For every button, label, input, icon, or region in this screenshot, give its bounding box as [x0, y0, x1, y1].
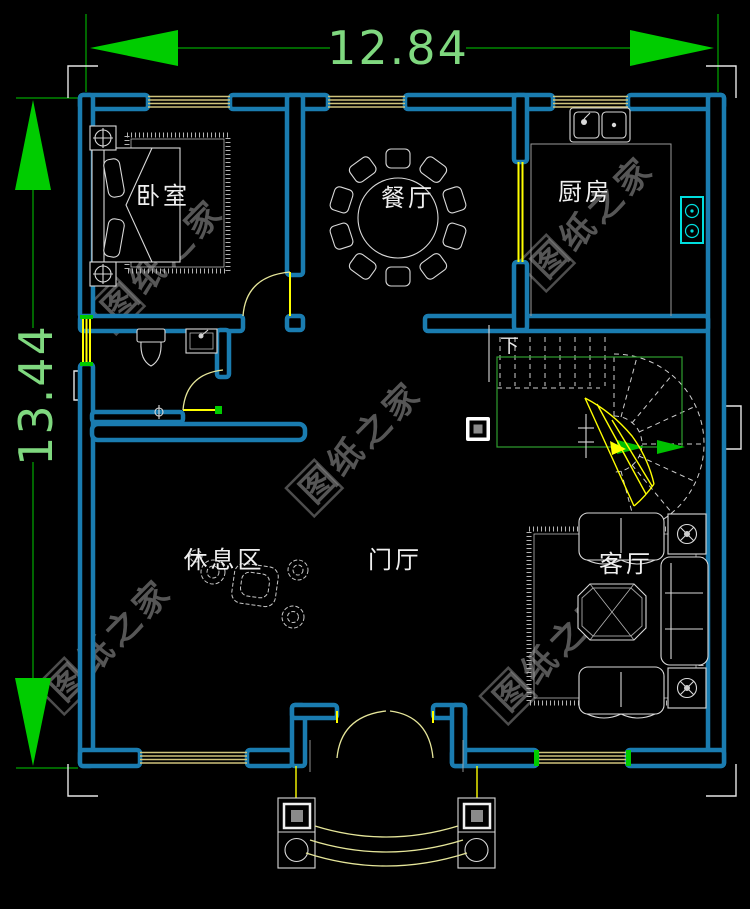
rest-area-window: [140, 753, 247, 764]
stair-direction-arrow: [657, 440, 685, 454]
end-table-lamp: [668, 668, 706, 708]
kitchen-window: [553, 97, 628, 108]
staircase: 下: [466, 325, 704, 534]
plant: [288, 560, 308, 580]
bracket-bottom-right: [706, 764, 736, 796]
down-arrow: [15, 678, 51, 766]
kitchen-west-wall: [514, 95, 527, 162]
watermark: 图纸之家: [518, 147, 663, 292]
entrance-hall-label: 门厅: [368, 546, 422, 574]
living-room-label: 客厅: [599, 550, 653, 578]
bedroom-window: [148, 97, 230, 108]
sofa-three-seat: [661, 557, 708, 665]
up-arrow: [15, 100, 51, 190]
column-symbol: [466, 417, 490, 441]
end-table-lamp: [668, 514, 706, 554]
dining-room: 餐厅: [329, 149, 467, 286]
toilet: [141, 342, 161, 366]
plant: [282, 606, 304, 628]
svg-text:图纸之家: 图纸之家: [292, 373, 431, 512]
coffee-table: [578, 584, 646, 640]
bedroom-label: 卧室: [136, 182, 190, 210]
kitchen-label: 厨房: [558, 178, 612, 206]
living-room: 客厅: [529, 513, 708, 718]
toilet-tank: [137, 329, 165, 342]
rest-area: 休息区: [184, 546, 309, 628]
stair-down-label: 下: [500, 335, 519, 357]
living-room-window: [534, 750, 631, 766]
cad-floor-plan: 图纸之家 图纸之家 图纸之家 图纸之家 图纸之家 12.84: [0, 0, 750, 909]
porch-pedestal: [278, 798, 315, 868]
watermark: 图纸之家: [286, 372, 431, 517]
kitchen-sliding-door: [519, 162, 523, 262]
floor-plan-drawing: 图纸之家 图纸之家 图纸之家 图纸之家 图纸之家 12.84: [0, 0, 750, 909]
bedroom-door: [243, 272, 290, 316]
rest-area-label: 休息区: [184, 546, 265, 574]
kitchen-sink: [570, 108, 630, 142]
entrance-hall: 门厅: [368, 546, 422, 574]
right-arrow: [630, 30, 714, 66]
stair-north-wall: [425, 316, 708, 331]
nightstand-lamp: [90, 262, 116, 286]
svg-text:图纸之家: 图纸之家: [42, 571, 181, 710]
entry-steps: [306, 826, 467, 866]
dimension-top: 12.84: [86, 14, 718, 92]
nightstand-lamp: [90, 126, 116, 150]
hall-north-wall: [92, 424, 305, 440]
left-arrow: [90, 30, 178, 66]
gas-stove: [681, 197, 703, 243]
svg-text:图纸之家: 图纸之家: [524, 148, 663, 287]
watermark: 图纸之家: [36, 570, 181, 715]
bracket-right-mid: [724, 406, 741, 449]
bracket-bottom-left: [68, 764, 98, 796]
dining-window: [328, 97, 405, 108]
dining-room-label: 餐厅: [381, 184, 435, 212]
bathroom-south-wall: [92, 412, 183, 422]
width-dimension-text: 12.84: [327, 21, 469, 75]
entry-porch: [278, 766, 495, 868]
sofa-two-seat: [579, 667, 664, 718]
bedroom-east-wall: [287, 95, 303, 275]
height-dimension-text: 13.44: [9, 324, 63, 466]
stair-guide-box: [497, 357, 682, 447]
porch-pedestal: [458, 798, 495, 868]
